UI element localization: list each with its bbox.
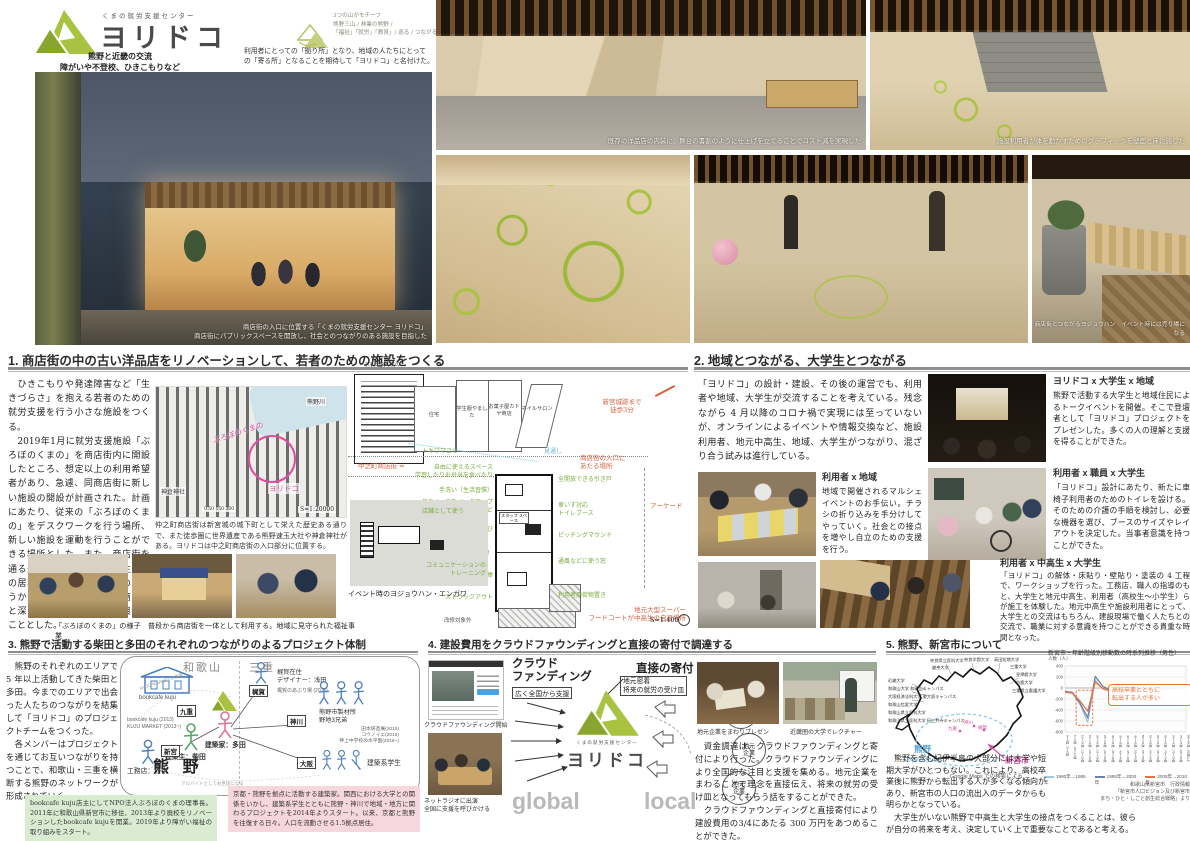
svg-text:-200: -200 <box>1055 697 1064 702</box>
naming-note: 利用者にとっての「拠り所」となり、地域の人たちにとって の「寄る所」となることを… <box>244 46 444 66</box>
inner-mark <box>525 524 541 535</box>
yoridoko-label: ヨリドコ <box>268 483 300 494</box>
b2-text: 熊野で活動する大学生と地域住民によるトークイベントを開催。そこで登壇者として「ヨ… <box>1053 390 1190 448</box>
chart-callout: 高校卒業とともに 転出する人が多い <box>1108 684 1190 706</box>
section3-rule2 <box>8 654 418 655</box>
svg-text:0〜4歳→5〜9歳: 0〜4歳→5〜9歳 <box>1065 735 1070 756</box>
section3-title: 3. 熊野で活動する柴田と多田のそれぞれのつながりのよるプロジェクト体制 <box>8 637 420 652</box>
node-kamikawa: 神川 <box>287 715 306 727</box>
univ-label: 近畿大学 <box>888 677 905 684</box>
bio-shibata: bookcafe kuju店主にしてNPO法人ぶろぼのくまの理事長。2011年に… <box>25 795 217 841</box>
naming-line1: 利用者にとっての「拠り所」となり、地域の人たちにとって <box>244 46 444 56</box>
person <box>845 678 857 712</box>
person-tada-icon <box>215 711 235 739</box>
people-dots <box>697 670 779 718</box>
section4-title: 4. 建設費用をクラウドファウンディングと直接の寄付で調達する <box>428 637 878 652</box>
pink-ball <box>938 516 958 536</box>
facade-ceiling-wood <box>145 182 395 208</box>
block-user-students-univ: 利用者 x 中高生 x 大学生 「ヨリドコ」の解体・床貼り・壁貼り・塗装の 4 … <box>1000 556 1190 643</box>
univ-label: 和歌山県立医科大学 <box>888 709 926 716</box>
photo-interior-graphics: 施設利用者が体を動かすためのグラフィックを壁面と床に施した <box>870 0 1190 150</box>
city-map: 熊野川 ぶろぼのくまの ヨリドコ 神倉神社 0 50 150 300 S=1:2… <box>155 386 347 518</box>
caption-lecture: 近畿圏の大学でレクチャー <box>790 727 862 736</box>
label-wash: 手洗い（生活習慣） <box>368 487 493 495</box>
comm1: コミュニケーションの <box>406 562 486 570</box>
svg-text:-600: -600 <box>1055 719 1064 724</box>
page-text-lines <box>432 705 498 715</box>
page-photo <box>432 671 474 701</box>
univ-label: 奈良学園大学 <box>964 656 989 663</box>
blackboard <box>934 478 964 500</box>
entrance-line2: あたる場所 <box>580 462 660 470</box>
svg-text:70〜74歳→75〜79歳: 70〜74歳→75〜79歳 <box>1171 735 1176 762</box>
section4-p2: クラウドファウンディングと直接寄付により建設費用の3/4にあたる 300 万円を… <box>695 804 878 841</box>
inner-wall <box>497 552 551 553</box>
wall-edge <box>436 155 690 185</box>
univ-label: 三重大学 <box>1010 663 1027 670</box>
svg-text:400: 400 <box>1056 664 1064 669</box>
students-icons <box>321 747 365 773</box>
people-dots <box>428 743 502 787</box>
free2: 学習したりお弁当を食べたり <box>368 472 493 480</box>
label-tada: 建築家：多田 <box>205 739 246 749</box>
kuju-note: bookcafe kuju (2013) KUJU MARKET (2013~) <box>127 717 181 730</box>
wood-bench <box>766 80 858 108</box>
kuju-note2: KUJU MARKET (2013~) <box>127 724 181 731</box>
plan-entrance-note: 商店街の入口に あたる場所 <box>580 454 660 470</box>
brand-logo-mountains <box>34 8 96 54</box>
people-dots <box>28 564 128 604</box>
inner-wall <box>497 510 551 511</box>
plan-sight-label: 見通し <box>544 446 562 455</box>
photo-wheelchair-test <box>928 468 1046 560</box>
callout-line1: 高校卒業とともに <box>1112 687 1188 695</box>
inset-mark <box>360 522 374 558</box>
photo-caption: 商店街とつながるヨジョウハン イベント時には売り場になる <box>1032 321 1185 339</box>
photo-floor-circle-graphics <box>436 155 690 343</box>
plan-label-nail: ネイルサロン <box>520 406 554 413</box>
site-plan: ぶろぼのくまの 住宅 学生服やました お菓子屋カドヤ商店 ネイルサロン 新宮城跡… <box>348 356 688 628</box>
node-kuju: 九重 <box>177 705 196 717</box>
page-button <box>477 689 499 695</box>
migration-line-chart: 4002000-200-400-600-8000〜4歳→5〜9歳5〜9歳→10〜… <box>1048 662 1190 774</box>
naming-line2: の「寄る所」となることを期待して「ヨリドコ」と名付けた。 <box>244 56 444 66</box>
section3-text: 熊野のそれぞれのエリアで 5 年以上活動してきた柴田と多田。今までのエリアで出会… <box>6 660 118 803</box>
inset-event-plan: 店舗として使う コミュニケーションの トレーニング <box>350 500 488 586</box>
ceiling-joists <box>870 0 1190 32</box>
north-clock-symbol <box>678 614 690 626</box>
super1: 地元大型スーパー <box>538 606 686 614</box>
scalebar: 0 50 150 300 <box>202 507 236 512</box>
b4-text: 「ヨリドコ」の解体・床貼り・壁貼り・塗装の 4 工程で、ワークショップを行った。… <box>1000 571 1190 643</box>
photo-floor-construction <box>820 560 970 628</box>
cap-radio2: 全国に支援を呼びかける <box>424 806 490 814</box>
people-dots <box>236 560 336 612</box>
people-dots <box>706 576 806 624</box>
entrance-line1: 商店街の入口に <box>580 454 660 462</box>
plan-main-building: スタッフ スペース <box>495 474 553 612</box>
desks <box>785 698 845 720</box>
svg-text:5〜9歳→10〜14歳: 5〜9歳→10〜14歳 <box>1073 735 1078 759</box>
label-pitch: ピッチングマウンド <box>558 532 668 540</box>
univ-label: 三重県立看護大学 <box>1012 687 1046 694</box>
photo-interior-stage: 既存の洋品店の内装に、舞台の書割のように仕上げを立てることでコスト減を実現した <box>436 0 866 150</box>
floor-circle <box>814 275 888 319</box>
kamikawa-notes: 田本研造展(2015) コウノイエ(2016) 神上中学校の水平面(2018~) <box>307 727 399 746</box>
plan-bldg-nail <box>515 384 563 448</box>
cap-radio1: ネットラジオに出演 <box>424 798 490 806</box>
kumano-big-label: 熊 野 <box>153 753 203 777</box>
facade-plant <box>175 222 215 282</box>
screen <box>956 388 1008 420</box>
motif-title: 3つの山がモチーフ <box>333 12 441 21</box>
comm2: トレーニング <box>406 570 486 578</box>
univ-label: 皇學館大学 <box>1016 671 1037 678</box>
town-label: 神川 <box>964 719 973 726</box>
univ-label: 和歌山県立医科大学 紀三井寺キャンパス <box>888 717 965 724</box>
photo-marche <box>698 472 816 556</box>
b2-head: ヨリドコ x 大学生 x 地域 <box>1053 374 1190 387</box>
facade-wall <box>81 72 432 182</box>
label-window: 通風などに使う窓 <box>558 558 668 566</box>
label-bag: 利用者用荷物置き <box>558 592 668 600</box>
chart-source1: 和歌山県新宮市 行政情報 <box>1048 782 1190 789</box>
seizai2: 野地3兄弟 <box>319 717 356 725</box>
label-off-target: 改修対象外 <box>444 616 472 624</box>
plan-label-house: 住宅 <box>414 412 454 419</box>
wheel <box>990 530 1012 552</box>
ceiling-joists <box>694 155 1028 183</box>
block-wall <box>973 32 1108 92</box>
facade-caption-line2: 商店街にパブリックスペースを開放し、社会とのつながりのある施設を目指した <box>194 332 427 341</box>
city-map-caption: 仲之町商店街は新宮城の城下町として栄えた歴史ある通りで、また徒歩圏に世界遺産であ… <box>155 520 347 552</box>
block-user-region: 利用者 x 地域 地域で開催されるマルシェイベントのお手伝い。チラシの折り込みを… <box>822 470 922 556</box>
univ-label: 和歌山大学 和歌山キャンパス <box>888 685 944 692</box>
svg-text:200: 200 <box>1056 675 1064 680</box>
local-word: local <box>644 788 696 815</box>
facade-caption-line1: 商店街の入口に位置する「くまの就労支援センター ヨリドコ」 <box>194 323 427 332</box>
univ-label: 和歌山信愛大学 <box>888 701 917 708</box>
plan-bldg-house <box>414 386 456 452</box>
brothers-icons <box>317 679 369 707</box>
kajika-l1: 梶賀在住 <box>277 669 326 677</box>
site-circle <box>248 435 296 483</box>
tagline-line1: 熊野と近畿の交流 <box>14 52 226 63</box>
svg-text:75〜79歳→80〜84歳: 75〜79歳→80〜84歳 <box>1179 735 1184 762</box>
section5-p2: 大学生がいない熊野で中高生と大学生の接点をつくることは、彼らが自分の将来を考え、… <box>886 812 1136 835</box>
svg-text:0: 0 <box>1061 686 1064 691</box>
univ-label: 奈良県立医科大学 <box>930 657 964 664</box>
photo-burobono-table <box>28 554 128 618</box>
planter <box>1042 225 1086 295</box>
photo-engawa-street: 商店街とつながるヨジョウハン イベント時には売り場になる <box>1032 155 1190 343</box>
chart-source: 和歌山県新宮市 行政情報 「新宮市人口ビジョン及び新宮市 まち・ひと・しごと創生… <box>1048 782 1190 803</box>
photo-shotengai-street <box>132 554 232 618</box>
univ-label: 畿央大学 <box>932 664 949 671</box>
caption-crowdfunding: クラウドファウンディング開始 <box>424 720 508 729</box>
svg-text:25〜29歳→30〜34歳: 25〜29歳→30〜34歳 <box>1103 735 1108 762</box>
svg-text:80〜84歳→85歳以上: 80〜84歳→85歳以上 <box>1186 735 1190 762</box>
shop-light <box>162 578 206 600</box>
section2-rule <box>694 367 1190 370</box>
svg-text:-400: -400 <box>1055 708 1064 713</box>
b1-head: 利用者 x 地域 <box>822 470 922 483</box>
center-logo-mountains <box>575 688 639 736</box>
section4-text: 資金調達は、クラウドファウンディングと寄付により行った。クラウドファウンディング… <box>695 740 878 841</box>
svg-text:30〜34歳→35〜39歳: 30〜34歳→35〜39歳 <box>1111 735 1116 762</box>
b1-text: 地域で開催されるマルシェイベントのお手伝い。チラシの折り込みを手分けしてやってい… <box>822 486 922 556</box>
section4-p1: 資金調達は、クラウドファウンディングと寄付により行った。クラウドファウンディング… <box>695 740 878 804</box>
node-osaka: 大阪 <box>297 757 316 769</box>
inset-mark <box>430 540 444 550</box>
presentation-board: くまの就労支援センター ヨリドコ 熊野と近畿の交流 障がいや不登校、ひきこもりな… <box>0 0 1190 841</box>
castle-line2: 徒歩3分 <box>584 406 660 414</box>
center-logo-name: ヨリドコ <box>561 746 653 771</box>
chart-source2: 「新宮市人口ビジョン及び新宮市 <box>1048 789 1190 796</box>
b3-text: 「ヨリドコ」設計にあたり、新たに車椅子利用者のためのトイレを設ける。そのための介… <box>1053 482 1190 552</box>
motif-note: 3つの山がモチーフ 熊野三山 / 林業の熊野 / 「福祉」「就労」「教育」/ 巡… <box>333 12 441 38</box>
photo-wall-painting <box>698 562 816 628</box>
global-word: global <box>512 788 580 815</box>
inset-caption: イベント時のヨジョウハン・エンガワ <box>348 589 467 599</box>
chart-source3: まち・ひと・しごと創生総合戦略」より <box>1048 796 1190 803</box>
block-user-staff-univ: 利用者 x 職員 x 大学生 「ヨリドコ」設計にあたり、新たに車椅子利用者のため… <box>1053 466 1190 552</box>
section2-rule2 <box>694 371 1190 372</box>
motif-logo-icon <box>296 24 328 48</box>
inset-comm-label: コミュニケーションの トレーニング <box>406 562 486 577</box>
label-free-space: 自由に使えるスペース 学習したりお弁当を食べたり <box>368 464 493 479</box>
brand-title: ヨリドコ <box>100 16 228 55</box>
plan-label-burobono: ぶろぼのくまの <box>352 362 412 369</box>
page-header-bar <box>429 661 503 667</box>
photo-facade-night: 商店街の入口に位置する「くまの就労支援センター ヨリドコ」 商店街にパブリックス… <box>35 72 432 345</box>
plan-label-uniform: 学生服やました <box>456 406 488 419</box>
univ-label: 鈴鹿大学 <box>1016 679 1033 686</box>
inner-mark <box>505 484 523 496</box>
photo-caption: 施設利用者が体を動かすためのグラフィックを壁面と床に施した <box>997 137 1185 146</box>
plan-scale: S=1:400 <box>650 616 679 624</box>
univ-label: 高田短期大学 <box>994 656 1019 663</box>
section4-rule <box>428 651 876 653</box>
label-door: 全開放できる引き戸 <box>558 476 668 484</box>
b4-head: 利用者 x 中高生 x 大学生 <box>1000 556 1190 569</box>
seizai-labels: 熊野市製材所 野地3兄弟 <box>319 709 356 725</box>
photo-company-presen <box>697 662 779 724</box>
seizai1: 熊野市製材所 <box>319 709 356 717</box>
svg-text:35〜39歳→40〜44歳: 35〜39歳→40〜44歳 <box>1118 735 1123 762</box>
block-yoridoko-univ-region: ヨリドコ x 大学生 x 地域 熊野で活動する大学生と地域住民によるトークイベン… <box>1053 374 1190 448</box>
castle-line1: 新宮城跡まで <box>584 398 660 406</box>
ceiling-joists <box>436 0 866 36</box>
section3-p2: 各メンバーはプロジェクトを通じてお互いつながりを持つことで、和歌山・三重を横断す… <box>6 738 118 803</box>
kuju-note1: bookcafe kuju (2013) <box>127 717 181 724</box>
awning <box>160 568 208 578</box>
section2-intro: 「ヨリドコ」の設計・建設、その後の運営でも、利用者や地域、大学生が交流することを… <box>698 378 922 464</box>
audience <box>928 430 1046 462</box>
svg-text:15〜19歳→20〜24歳: 15〜19歳→20〜24歳 <box>1088 735 1093 762</box>
photo-interior-people <box>694 155 1028 343</box>
mini-logo-mountains <box>211 691 237 711</box>
svg-text:50〜54歳→55〜59歳: 50〜54歳→55〜59歳 <box>1141 735 1146 762</box>
svg-text:45〜49歳→50〜54歳: 45〜49歳→50〜54歳 <box>1133 735 1138 762</box>
network-diagram: 和歌山 三重 bookcafe kuju 九重 bookcafe kuju (2… <box>120 656 420 796</box>
staff-space-label: スタッフ スペース <box>499 512 529 524</box>
plan-tokiwa: トキワマユミ <box>422 448 458 456</box>
b3-head: 利用者 x 職員 x 大学生 <box>1053 466 1190 479</box>
motif-line1: 熊野三山 / 林業の熊野 / <box>333 21 441 30</box>
person-silhouette <box>784 195 798 249</box>
castle-arrow <box>655 385 675 397</box>
map-scale: S=1:20000 <box>298 506 336 513</box>
section3-rule <box>8 651 418 653</box>
photo-univ-lecture <box>783 662 877 724</box>
section3-p1: 熊野のそれぞれのエリアで 5 年以上活動してきた柴田と多田。今までのエリアで出会… <box>6 660 118 738</box>
svg-text:40〜44歳→45〜49歳: 40〜44歳→45〜49歳 <box>1126 735 1131 762</box>
svg-text:20〜24歳→25〜29歳: 20〜24歳→25〜29歳 <box>1096 735 1101 762</box>
section5-p1: 熊野を含む紀伊半島の大部分には大学や短期大学がひとつもない。これにより、高校卒業… <box>886 753 1046 811</box>
page-amount-lines <box>477 673 499 687</box>
svg-text:-800: -800 <box>1055 730 1064 735</box>
arcade-line <box>644 468 645 588</box>
callout-line2: 転出する人が多い <box>1112 695 1188 703</box>
label-arcade: アーケード <box>650 502 683 510</box>
person-asada-icon <box>253 661 269 685</box>
photo-caption: 既存の洋品店の内装に、舞台の書割のように仕上げを立てることでコスト減を実現した <box>608 137 861 146</box>
person-silhouette <box>929 191 945 251</box>
people-dots <box>698 476 816 516</box>
label-students: 建築系学生 <box>367 757 401 767</box>
kamikawa-n3: 神上中学校の水平面(2018~) <box>307 739 399 745</box>
facade-caption: 商店街の入口に位置する「くまの就労支援センター ヨリドコ」 商店街にパブリックス… <box>194 323 427 341</box>
plan-label-candy: お菓子屋カドヤ商店 <box>488 404 520 417</box>
river-label: 熊野川 <box>306 397 326 406</box>
plan-castle-note: 新宮城跡まで 徒歩3分 <box>584 398 660 414</box>
motif-line2: 「福祉」「就労」「教育」/ 巡る / つながる / <box>333 29 441 38</box>
bio-tada: 京都・熊野を拠点に活動する建築家。関西における大学との関係をいかし、建築系学生と… <box>228 786 420 832</box>
section1-p1: ひきこもりや発達障害など「生きづらさ」を抱える若者のための就労支援を行う小さな施… <box>8 378 150 435</box>
photo-net-radio <box>428 733 502 795</box>
caption-radio: ネットラジオに出演 全国に支援を呼びかける <box>424 798 490 814</box>
svg-text:10〜14歳→15〜19歳: 10〜14歳→15〜19歳 <box>1081 735 1086 762</box>
bookcafe-label: bookcafe kuju <box>139 695 176 701</box>
svg-text:60〜64歳→65〜69歳: 60〜64歳→65〜69歳 <box>1156 735 1161 762</box>
shrine-label: 神倉神社 <box>160 487 186 496</box>
node-kajika: 梶賀 <box>249 685 268 697</box>
people-dots <box>850 566 970 622</box>
caption-presen: 地元企業をまわりプレゼン <box>697 727 769 736</box>
svg-text:65〜69歳→70〜74歳: 65〜69歳→70〜74歳 <box>1164 735 1169 762</box>
photo-work-pair <box>236 554 336 618</box>
person-shibata-icon <box>181 723 201 751</box>
toilet2: トイレブース <box>558 510 668 518</box>
univ-label: 大阪経済法科大学 東大阪キャンパス <box>888 693 956 700</box>
pink-ball <box>712 239 738 265</box>
inset-mark <box>378 526 420 544</box>
town-label: 九重 <box>948 725 957 732</box>
inset-use-label: 店舗として使う <box>422 508 464 516</box>
inner-mark <box>507 572 527 586</box>
facade-scaffold <box>35 72 81 345</box>
photo-talk-event <box>928 374 1046 462</box>
free1: 自由に使えるスペース <box>368 464 493 472</box>
svg-text:55〜59歳→60〜64歳: 55〜59歳→60〜64歳 <box>1149 735 1154 762</box>
wood-deck <box>1088 222 1190 276</box>
facade-people <box>245 247 335 292</box>
photo-crowdfunding-page <box>428 660 504 720</box>
